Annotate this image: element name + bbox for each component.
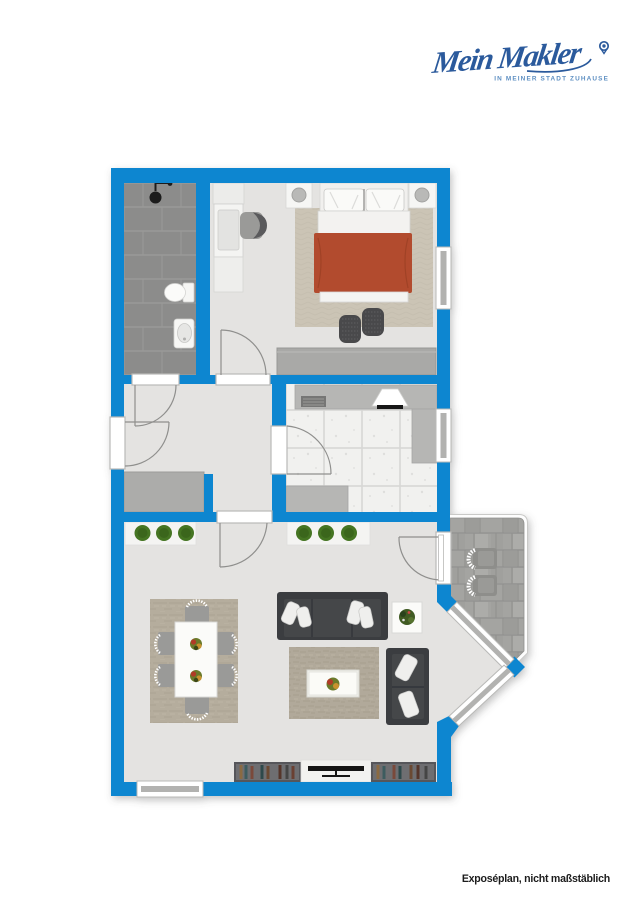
svg-text:IN MEINER STADT ZUHAUSE: IN MEINER STADT ZUHAUSE bbox=[494, 76, 609, 83]
svg-text:Exposéplan, nicht maßstäblich: Exposéplan, nicht maßstäblich bbox=[462, 873, 610, 885]
svg-text:Mein Makler: Mein Makler bbox=[430, 35, 586, 80]
